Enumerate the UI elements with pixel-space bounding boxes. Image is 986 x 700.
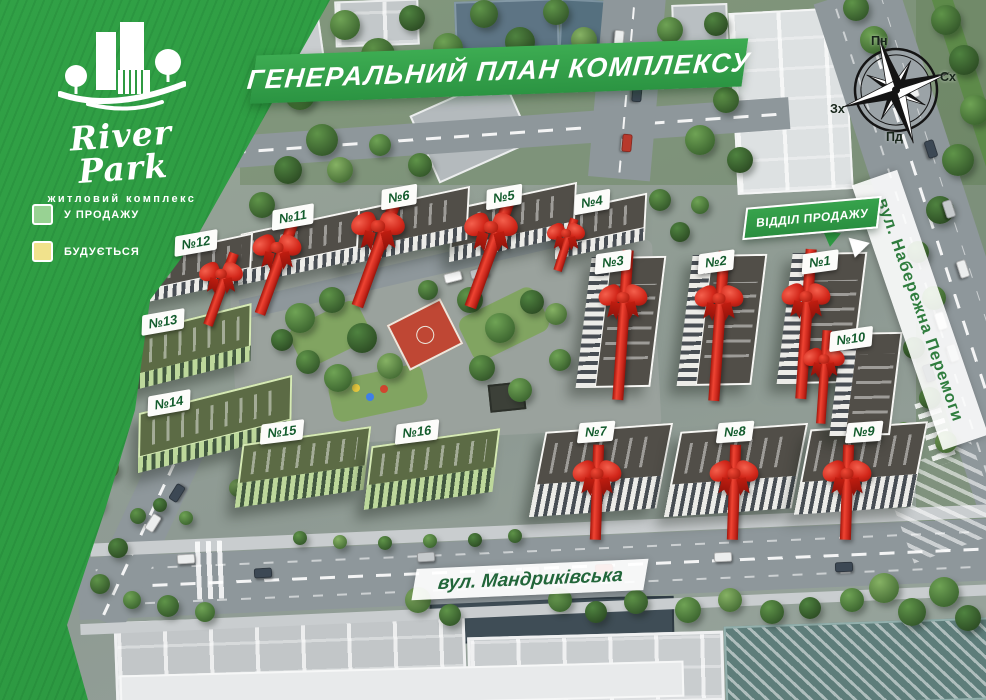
- crosswalk-bottom: [195, 540, 228, 599]
- tree: [955, 605, 981, 631]
- tree: [327, 157, 353, 183]
- tree: [347, 323, 377, 353]
- legend-label: У ПРОДАЖУ: [64, 209, 139, 221]
- tree: [153, 498, 167, 512]
- tree: [469, 355, 495, 381]
- tree: [319, 287, 345, 313]
- tree: [675, 597, 701, 623]
- gift-bow: [693, 279, 745, 325]
- tree: [929, 577, 959, 607]
- tree: [271, 329, 293, 351]
- street-name-bottom: вул. Мандриківська: [437, 564, 624, 594]
- compass-south-label: Пд: [886, 130, 903, 144]
- car: [714, 552, 732, 563]
- tree: [869, 573, 899, 603]
- tree: [333, 535, 347, 549]
- building-badge-№8: №8: [716, 421, 754, 444]
- tree: [378, 536, 392, 550]
- tree: [624, 590, 648, 614]
- tree: [543, 0, 569, 25]
- compass-rose: Пн Сх Пд Зх: [826, 20, 966, 160]
- gift-bow: [462, 206, 519, 257]
- car: [177, 554, 195, 565]
- gift-bow: [251, 228, 303, 274]
- tree: [549, 349, 571, 371]
- gift-bow: [198, 256, 245, 297]
- tree: [585, 601, 607, 623]
- car: [835, 562, 853, 573]
- legend-item-construction: БУДУЄТЬСЯ: [32, 241, 140, 262]
- tree: [657, 17, 683, 43]
- tree: [760, 600, 784, 624]
- tree: [520, 290, 544, 314]
- tree: [485, 313, 515, 343]
- tree: [97, 457, 119, 479]
- tree: [423, 534, 437, 548]
- river-park-logo-icon: [58, 18, 186, 114]
- tree: [306, 124, 338, 156]
- building-badge-№9: №9: [845, 421, 883, 444]
- tree: [123, 591, 141, 609]
- compass-north-label: Пн: [871, 34, 888, 48]
- tree: [704, 12, 728, 36]
- tree: [718, 588, 742, 612]
- river-park-logo: River Park житловий комплекс: [22, 18, 222, 205]
- tree: [330, 10, 360, 40]
- master-plan-poster: №1№2№3№4№5№6№7№8№9№10№11№12№13№14№15№16 …: [0, 0, 986, 700]
- logo-name: River Park: [20, 112, 224, 192]
- tree: [691, 196, 709, 214]
- tree: [90, 574, 110, 594]
- playground-equipment: [366, 393, 374, 401]
- tree: [670, 222, 690, 242]
- gift-bow: [546, 218, 587, 254]
- tree: [399, 5, 425, 31]
- tree: [545, 303, 567, 325]
- legend-label: БУДУЄТЬСЯ: [64, 246, 140, 258]
- tree: [108, 538, 128, 558]
- tree: [157, 595, 179, 617]
- tree: [179, 511, 193, 525]
- tree: [274, 156, 302, 184]
- tree: [439, 604, 461, 626]
- sales-office-label: ВІДДІЛ ПРОДАЖУ: [756, 206, 869, 230]
- tree: [377, 353, 403, 379]
- car: [417, 552, 435, 563]
- compass-west-label: Зх: [830, 102, 845, 116]
- compass-east-label: Сх: [940, 70, 956, 84]
- page-title: ГЕНЕРАЛЬНИЙ ПЛАН КОМПЛЕКСУ: [246, 47, 752, 96]
- tree: [285, 303, 315, 333]
- gift-bow: [349, 205, 406, 256]
- tree: [799, 597, 821, 619]
- tree: [130, 508, 146, 524]
- tree: [508, 378, 532, 402]
- tree: [468, 533, 482, 547]
- tree: [84, 492, 104, 512]
- car: [254, 568, 272, 579]
- tree: [195, 602, 215, 622]
- tree: [296, 350, 320, 374]
- neighbor-rooftop-teal: [724, 617, 986, 700]
- legend: У ПРОДАЖУ БУДУЄТЬСЯ: [32, 204, 140, 278]
- playground-equipment: [352, 384, 360, 392]
- tree: [324, 364, 352, 392]
- sale-color-swatch: [32, 204, 53, 225]
- building-badge-№7: №7: [577, 421, 615, 444]
- tree: [369, 134, 391, 156]
- tree: [649, 189, 671, 211]
- tree: [685, 125, 715, 155]
- tree: [727, 147, 753, 173]
- tree: [840, 588, 864, 612]
- tree: [470, 0, 498, 28]
- tree: [418, 280, 438, 300]
- gift-bow: [708, 454, 760, 500]
- gift-bow: [571, 454, 623, 500]
- tree: [293, 531, 307, 545]
- tree: [713, 87, 739, 113]
- sales-office-pointer: [821, 231, 841, 248]
- gift-bow: [597, 278, 649, 324]
- car: [621, 134, 633, 153]
- gift-bow: [821, 454, 873, 500]
- playground-equipment: [380, 385, 388, 393]
- construction-color-swatch: [32, 241, 53, 262]
- gift-bow: [780, 277, 832, 323]
- tree: [508, 529, 522, 543]
- tree: [249, 192, 275, 218]
- tree: [898, 598, 926, 626]
- legend-item-sale: У ПРОДАЖУ: [32, 204, 140, 225]
- tree: [408, 153, 432, 177]
